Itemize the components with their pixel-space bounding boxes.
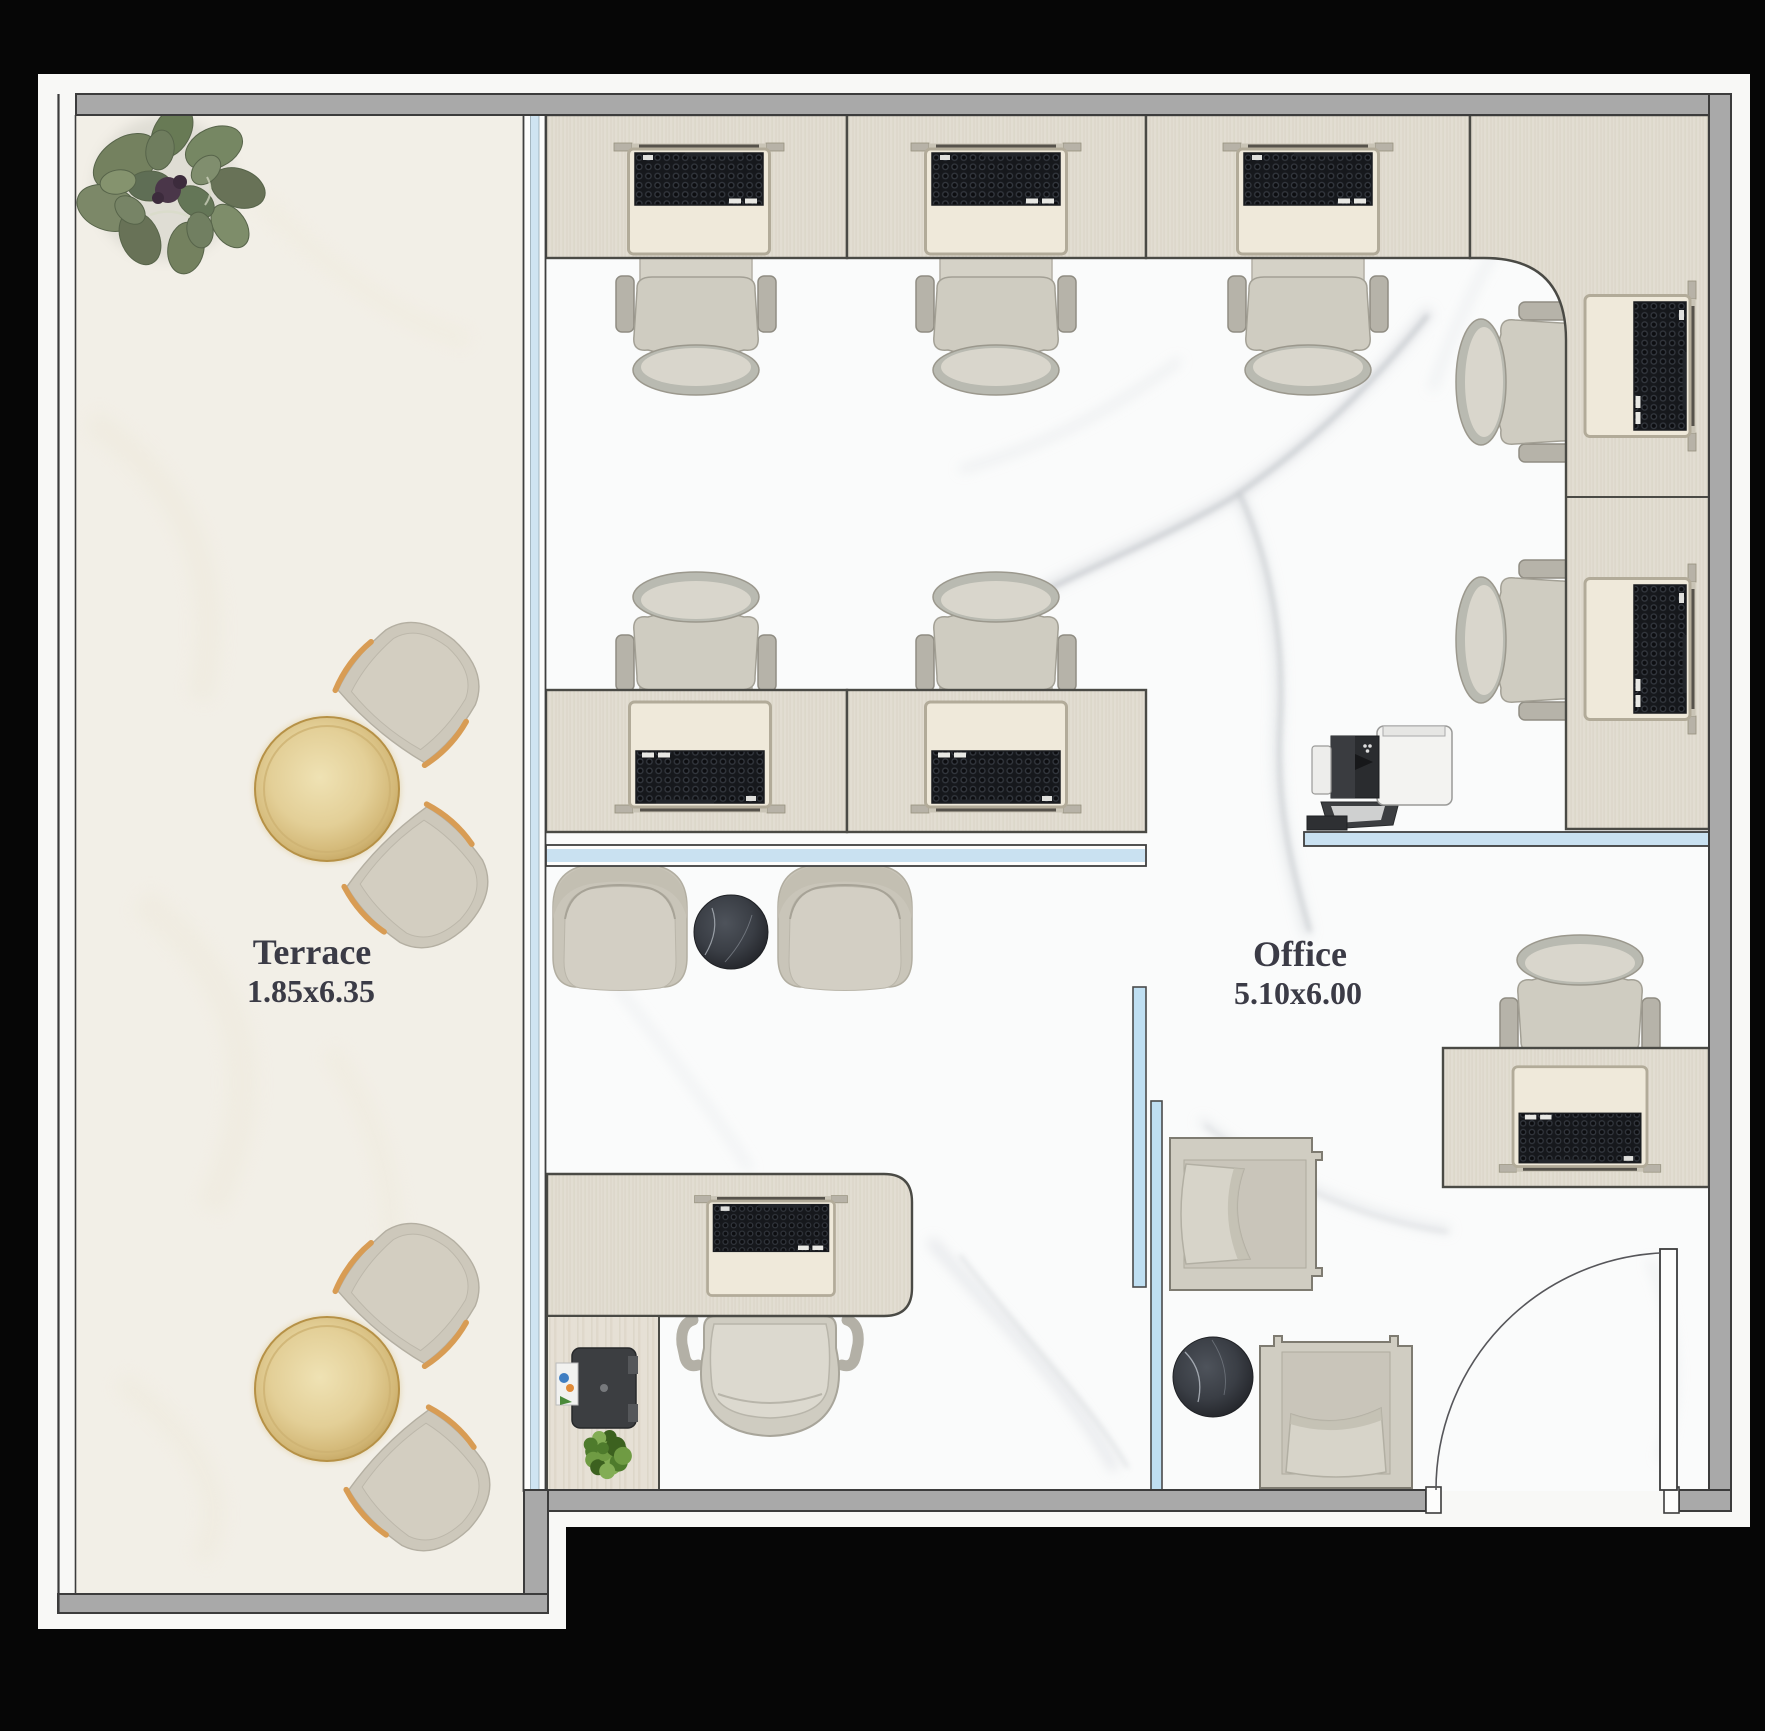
svg-text:5.10x6.00: 5.10x6.00 [1234, 975, 1362, 1011]
svg-text:1.85x6.35: 1.85x6.35 [247, 973, 375, 1009]
svg-text:Office: Office [1253, 934, 1347, 974]
svg-text:Terrace: Terrace [253, 932, 372, 972]
